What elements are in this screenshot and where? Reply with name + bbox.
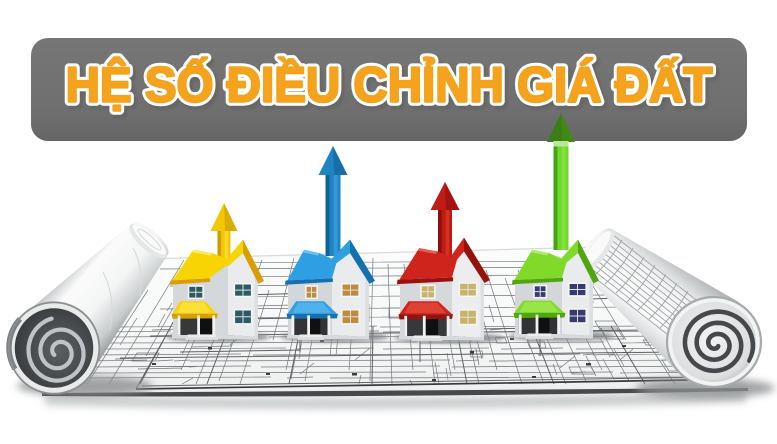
svg-text:HỆ SỐ ĐIỀU CHỈNH GIÁ ĐẤT: HỆ SỐ ĐIỀU CHỈNH GIÁ ĐẤT: [66, 57, 713, 113]
